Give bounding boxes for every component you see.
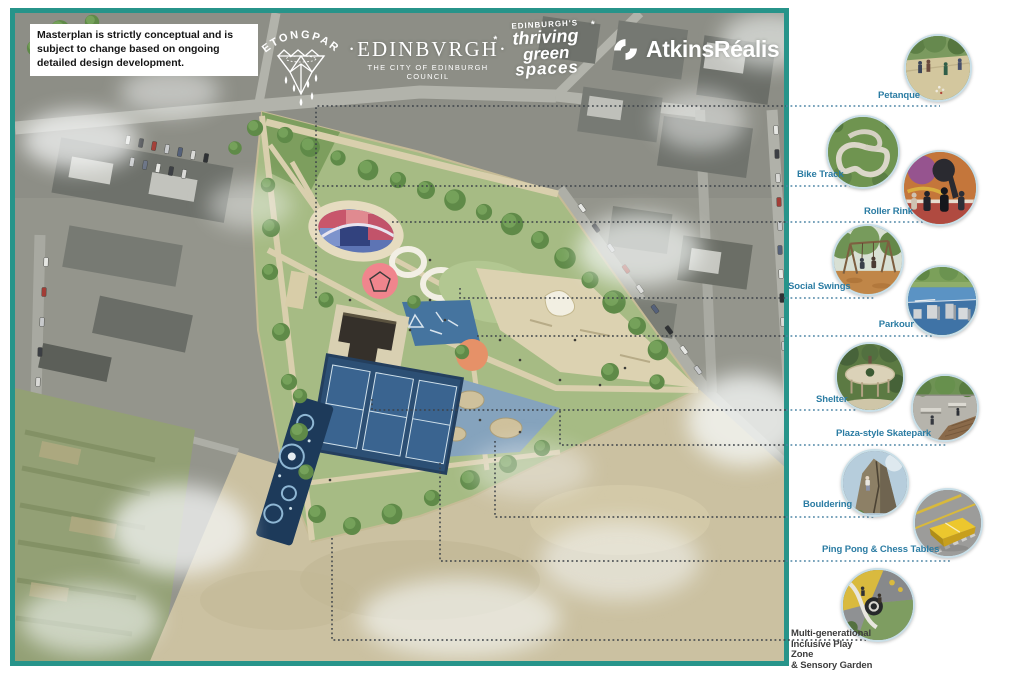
roller-rink-photo [902, 150, 978, 226]
betongpark-logo-text: BETONGPARK [250, 14, 342, 55]
edinburgh-logo-wordmark: ·EDINBVRGH· [348, 37, 508, 62]
callout-label-parkour: Parkour [874, 320, 914, 330]
parkour-photo [906, 265, 978, 337]
atkinsrealis-mark-icon [612, 36, 639, 63]
atkinsrealis-logo: AtkinsRéalis [612, 36, 779, 63]
betongpark-diamond-icon [278, 50, 324, 94]
thriving-green-spaces-logo: * * EDINBURGH'S thriving green spaces [499, 18, 594, 80]
callout-label-shelter: Shelter [816, 395, 848, 405]
edinburgh-council-logo: ·EDINBVRGH· THE CITY OF EDINBURGH COUNCI… [348, 37, 508, 81]
callout-label-ping-pong: Ping Pong & Chess Tables [822, 545, 922, 555]
aerial-masterplan-map [10, 8, 789, 666]
masterplan-graphic [15, 13, 784, 661]
sparkle-icon: * [591, 19, 595, 30]
callout-label-multigen: Multi-generational Inclusive Play Zone &… [791, 629, 873, 671]
sparkle-icon: * [493, 35, 497, 46]
disclaimer-note: Masterplan is strictly conceptual and is… [30, 24, 258, 76]
callout-label-roller-rink: Roller Rink [853, 207, 913, 217]
callout-label-multigen-line3: & Sensory Garden [791, 661, 873, 672]
callout-label-multigen-line2: Inclusive Play Zone [791, 640, 873, 661]
masterplan-poster: Masterplan is strictly conceptual and is… [0, 0, 1024, 684]
betongpark-logo: BETONGPARK [250, 14, 352, 106]
callout-label-plaza-skatepark: Plaza-style Skatepark [836, 429, 920, 439]
svg-text:BETONGPARK: BETONGPARK [250, 14, 342, 55]
callout-label-bike-track: Bike Track [797, 170, 844, 180]
callout-label-social-swings: Social Swings [788, 282, 851, 292]
callout-label-multigen-line1: Multi-generational [791, 629, 873, 640]
edinburgh-logo-subtitle: THE CITY OF EDINBURGH COUNCIL [348, 63, 508, 81]
atkinsrealis-wordmark: AtkinsRéalis [646, 36, 779, 63]
callout-label-bouldering: Bouldering [803, 500, 852, 510]
green-spaces-line4: spaces [501, 59, 594, 79]
callout-label-petanque: Petanque [855, 91, 920, 101]
